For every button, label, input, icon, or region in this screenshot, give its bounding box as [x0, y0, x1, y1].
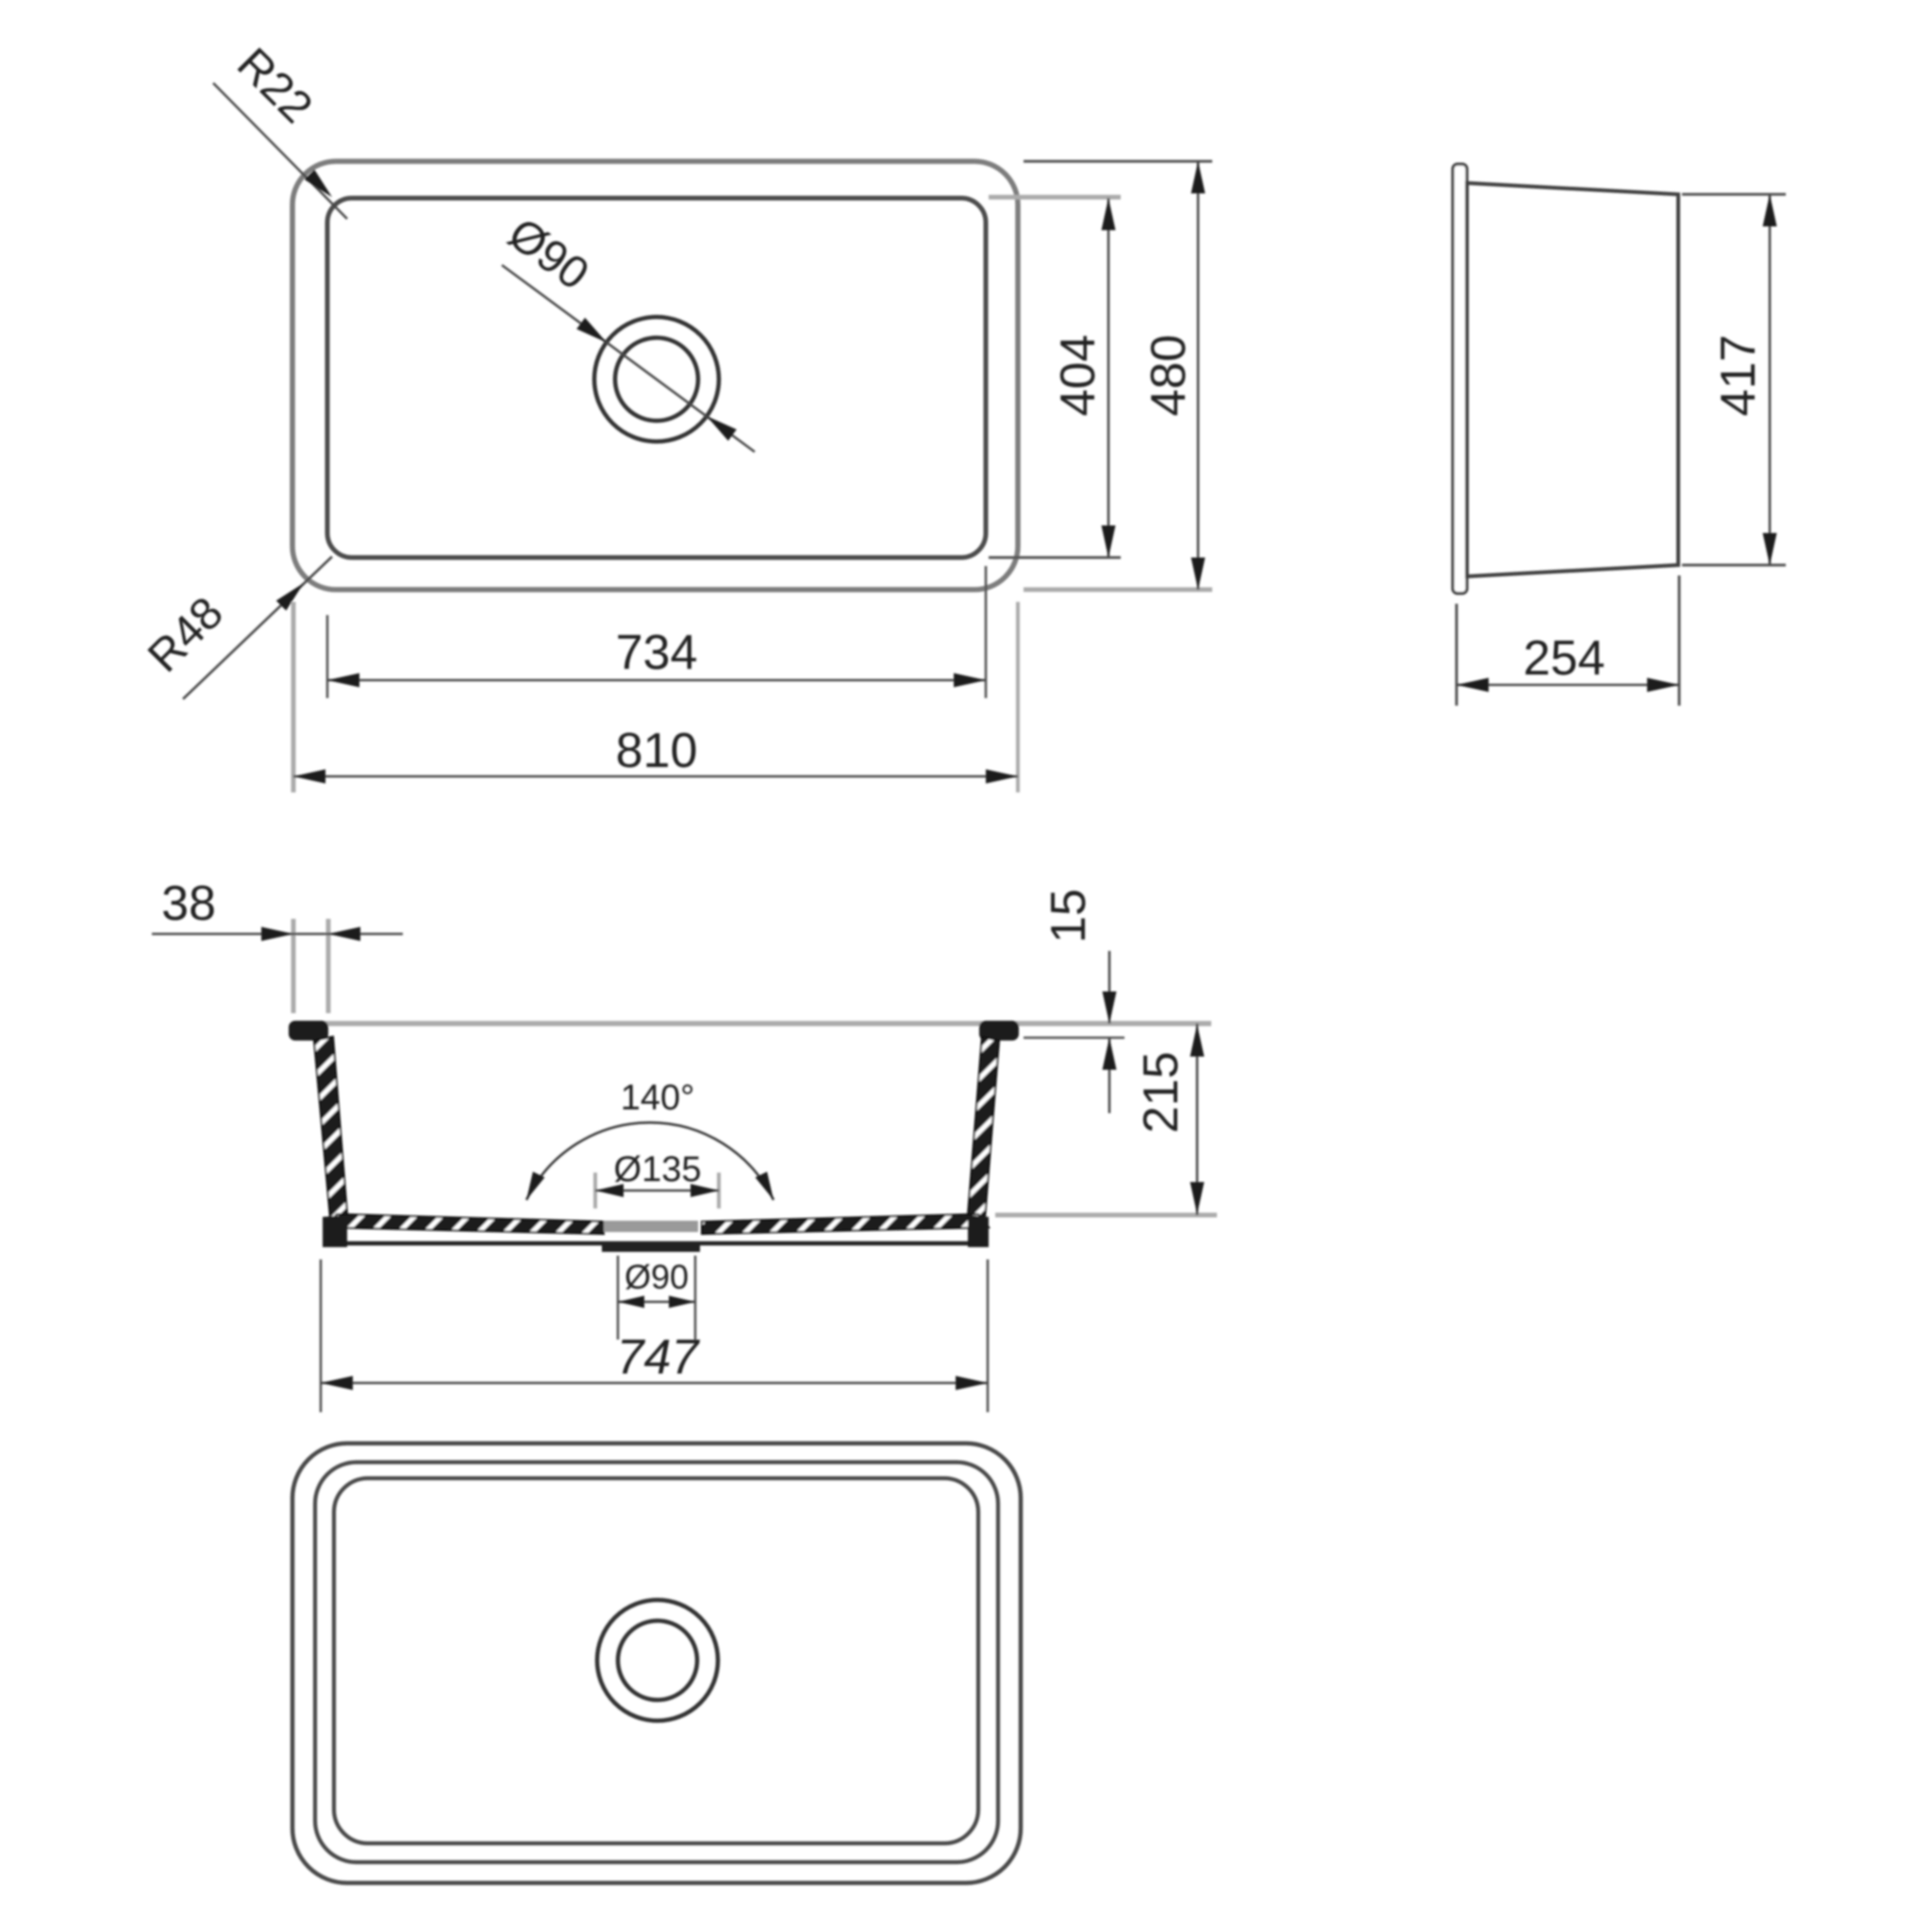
svg-text:404: 404: [1051, 335, 1106, 417]
svg-text:747: 747: [617, 1330, 701, 1385]
svg-text:810: 810: [616, 724, 698, 778]
svg-text:Ø90: Ø90: [625, 1257, 689, 1296]
svg-text:417: 417: [1711, 335, 1766, 417]
svg-text:254: 254: [1524, 631, 1606, 686]
svg-text:734: 734: [616, 625, 698, 680]
svg-text:480: 480: [1141, 335, 1196, 417]
svg-text:140°: 140°: [621, 1078, 695, 1118]
svg-text:15: 15: [1041, 889, 1096, 943]
svg-text:38: 38: [161, 876, 216, 931]
svg-text:Ø135: Ø135: [614, 1150, 702, 1190]
svg-text:215: 215: [1134, 1052, 1189, 1134]
